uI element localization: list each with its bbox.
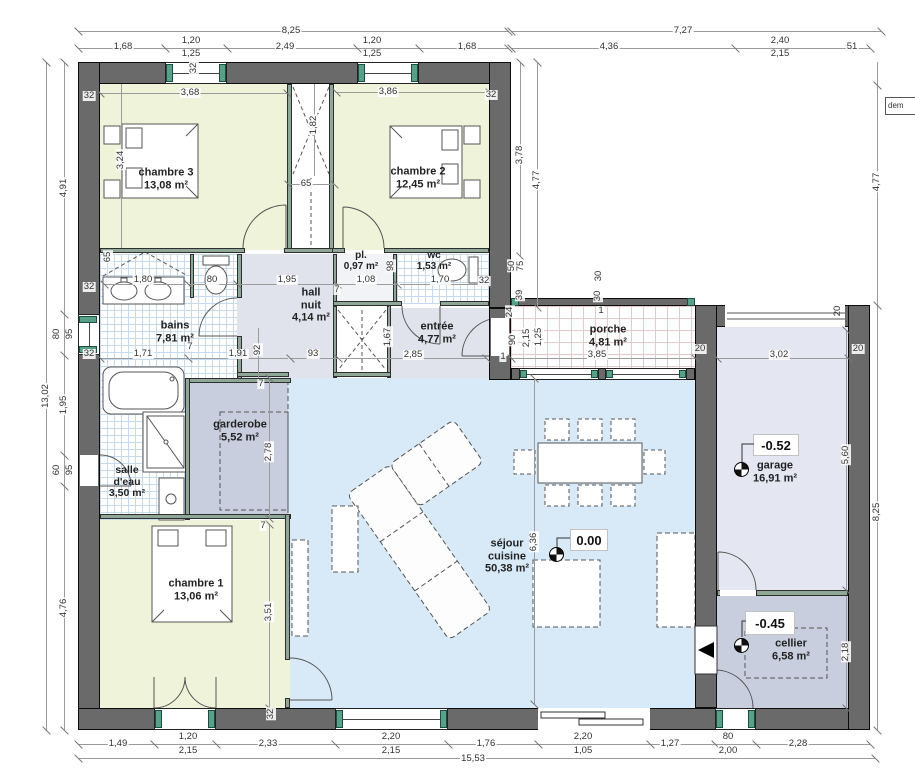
floor-plan: chambre 313,08 m² chambre 212,45 m² cham…	[0, 0, 915, 768]
garage-door	[727, 313, 845, 319]
level-leaders	[557, 444, 754, 637]
sliding-door	[541, 712, 643, 725]
annotation-layer	[0, 0, 915, 768]
entrance-arrow-icon	[695, 626, 717, 674]
